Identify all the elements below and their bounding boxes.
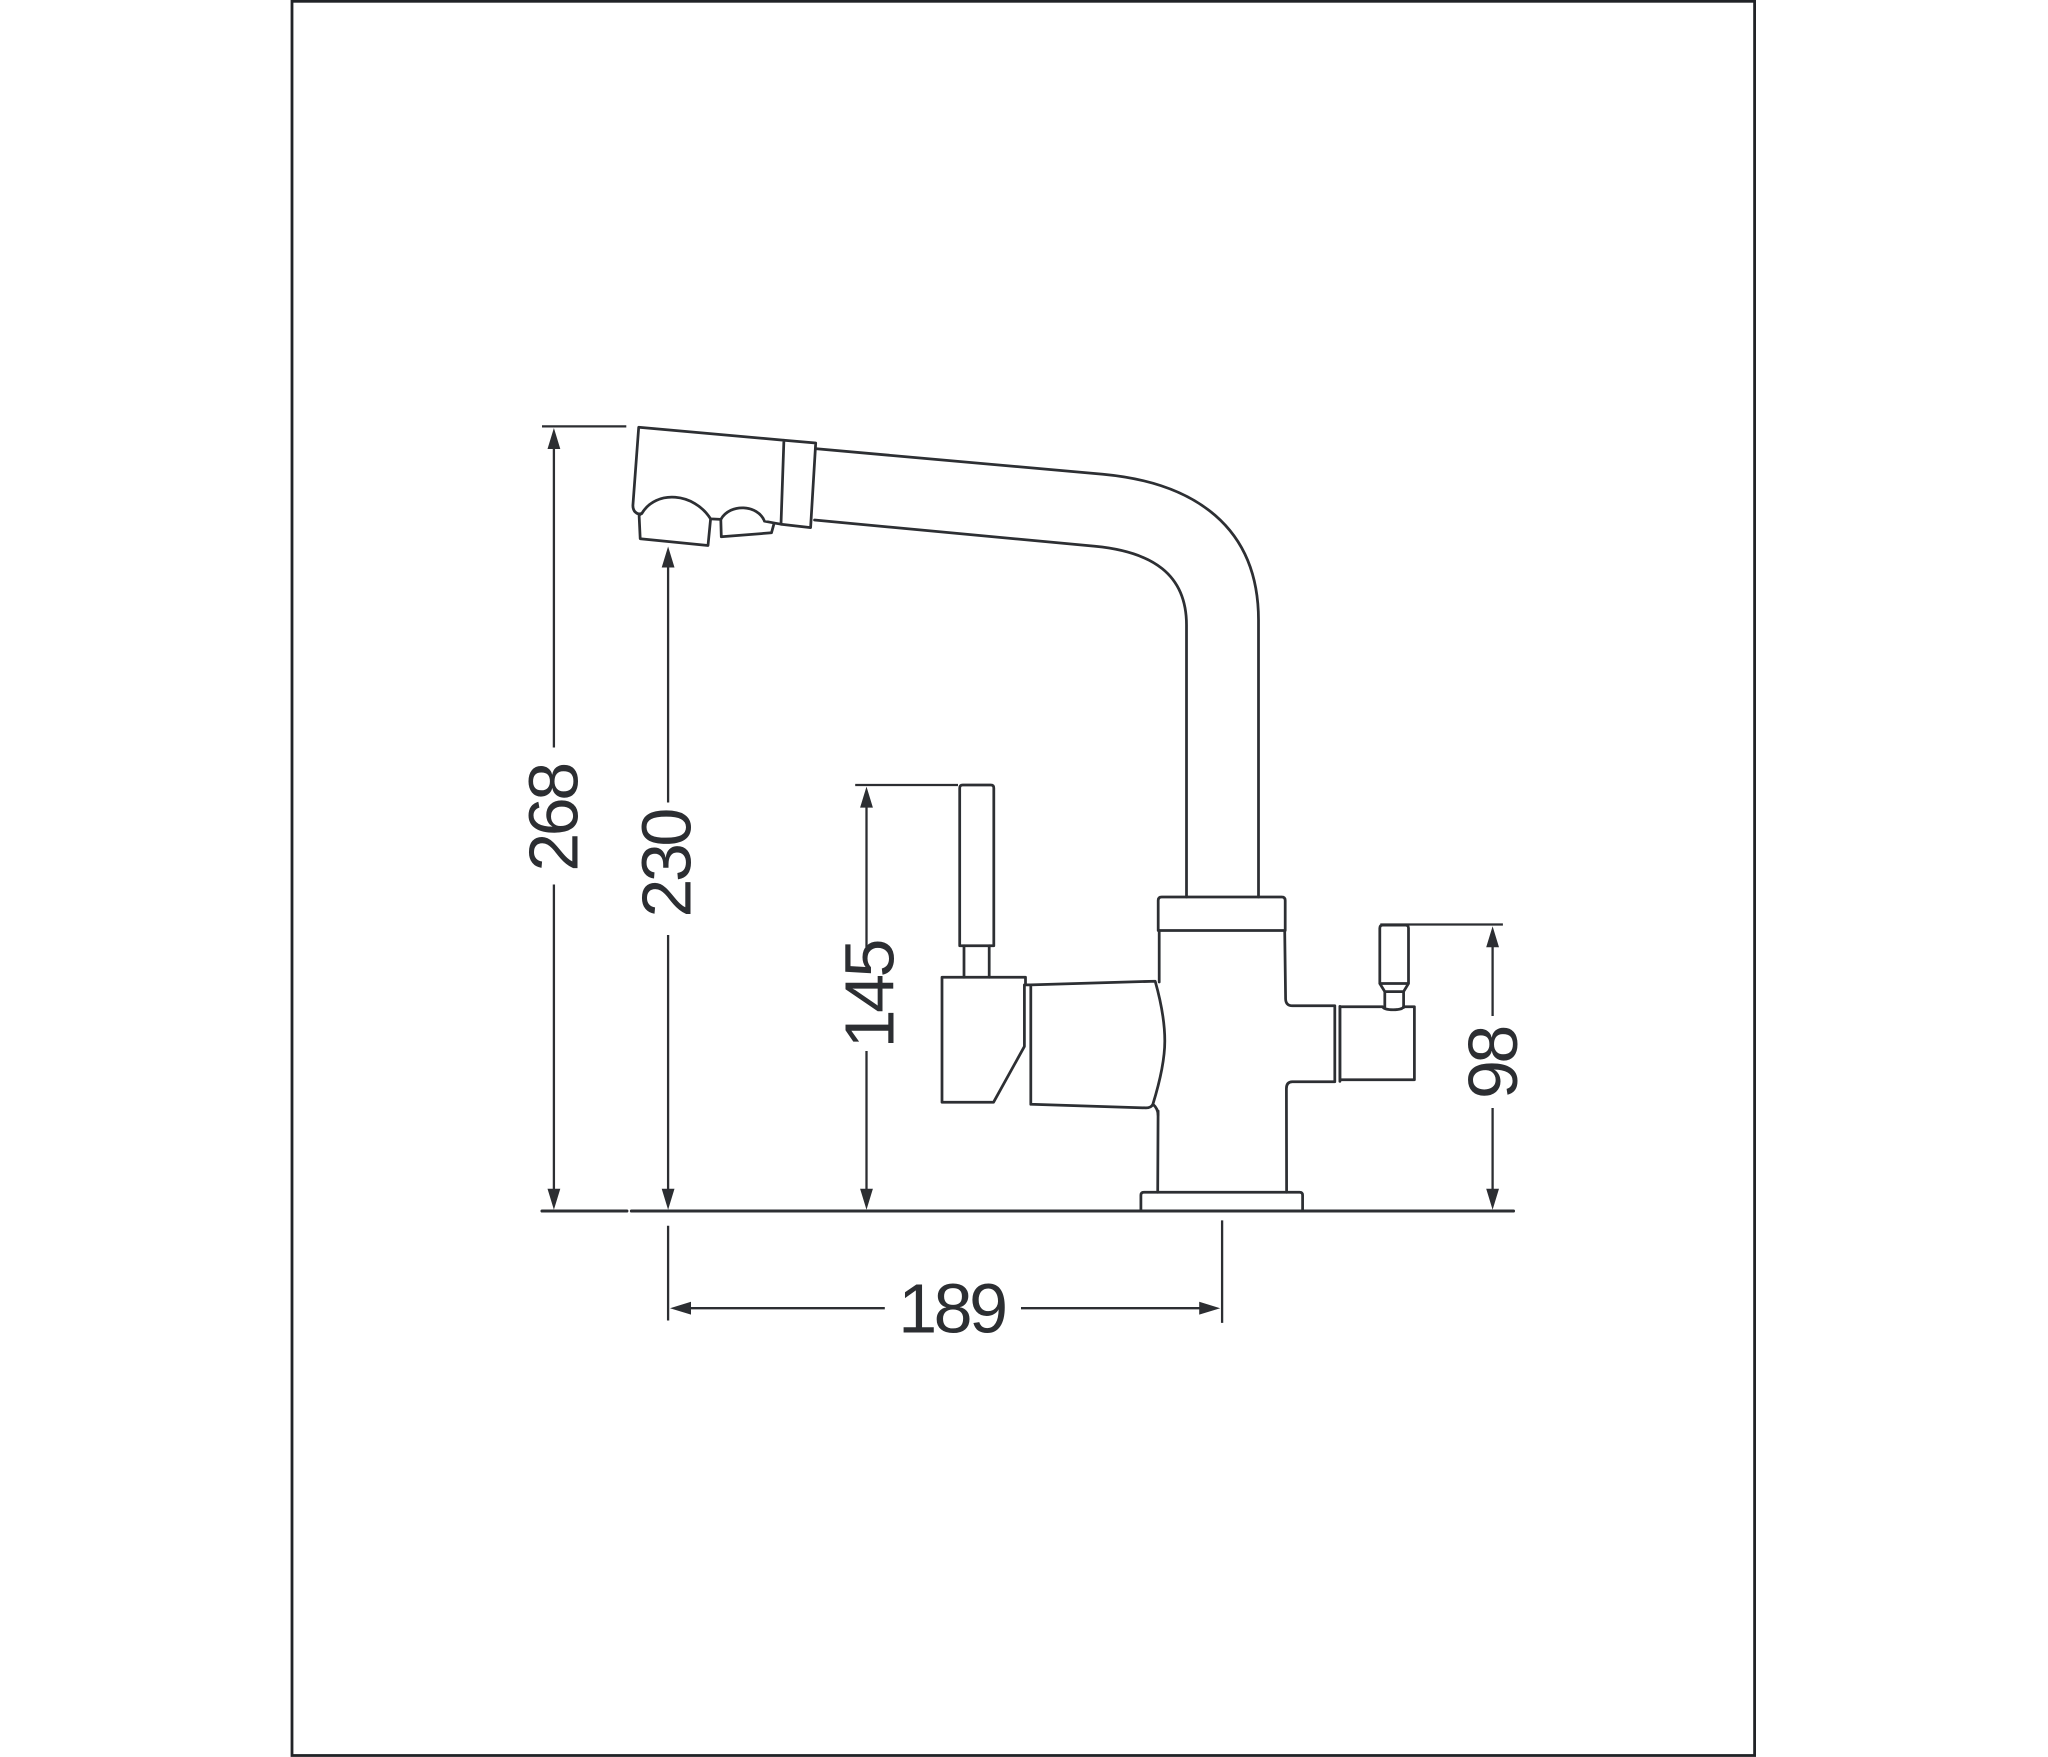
svg-text:189: 189: [898, 1270, 1005, 1348]
svg-text:268: 268: [514, 765, 592, 872]
svg-text:230: 230: [627, 810, 705, 918]
svg-text:98: 98: [1454, 1028, 1532, 1099]
svg-text:145: 145: [831, 941, 909, 1048]
